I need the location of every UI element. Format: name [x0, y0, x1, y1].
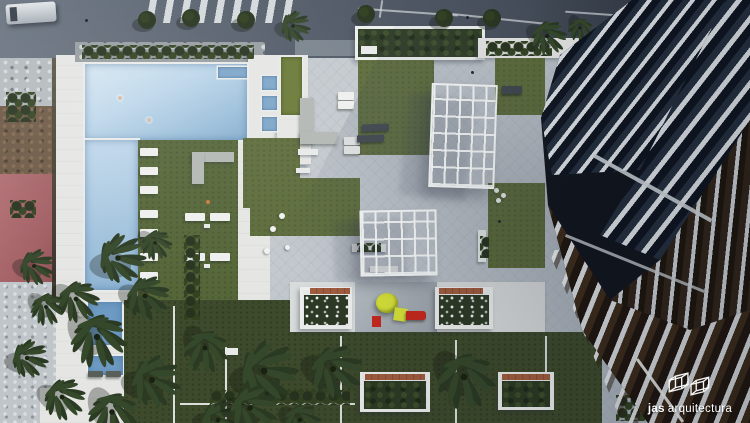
shrub-planter [498, 372, 554, 410]
hedge-row [210, 390, 350, 405]
person [471, 71, 474, 74]
pouf [501, 193, 506, 198]
shrub-planter [360, 372, 430, 412]
jacuzzi [262, 76, 277, 90]
swimmer [100, 318, 104, 322]
sun-lounger [140, 210, 158, 218]
brick-rim [310, 288, 350, 294]
jacuzzi [262, 117, 277, 131]
aerial-architectural-render: jasarquitectura [0, 0, 750, 423]
planter-shrubs [364, 381, 426, 409]
sun-lounger [185, 213, 205, 221]
bench-plants [480, 236, 489, 258]
plaza-lawn [250, 178, 360, 236]
bench [296, 168, 310, 173]
van-windshield [10, 7, 18, 21]
pouf [494, 188, 499, 193]
pouf [496, 198, 501, 203]
brick-rim [365, 374, 425, 380]
white-flowers [304, 295, 348, 325]
brick-rim [502, 374, 550, 380]
pouf [285, 245, 290, 250]
pouf [78, 312, 83, 317]
planter-shrubs [502, 381, 550, 407]
person [466, 16, 469, 19]
bush [10, 200, 36, 218]
pergola [428, 83, 498, 189]
sun-lounger [140, 272, 158, 280]
swimmer [118, 96, 122, 100]
curb-line [340, 336, 342, 423]
sun-lounger [338, 92, 354, 100]
person [206, 200, 210, 204]
sun-lounger [140, 148, 158, 156]
bushes [6, 92, 36, 122]
brick-rim [439, 288, 483, 294]
sun-lounger [106, 371, 121, 377]
pink-court [0, 174, 58, 282]
sun-lounger [338, 101, 354, 109]
playground-slide [406, 311, 426, 320]
sun-lounger [140, 186, 158, 194]
pool-step [218, 67, 247, 78]
crosswalk [146, 0, 296, 23]
logo-text-regular: arquitectura [668, 403, 732, 415]
hedge-row [486, 41, 552, 56]
pouf [264, 248, 270, 254]
white-flowers [439, 295, 489, 325]
curb-line [173, 306, 175, 423]
pouf [270, 226, 276, 232]
bench [502, 86, 522, 94]
flower-planter [300, 287, 352, 329]
pergola [359, 209, 437, 276]
curb-line [455, 340, 457, 423]
swimmer [147, 118, 151, 122]
flower-planter [435, 287, 493, 329]
swimming-pool-lane [85, 140, 138, 290]
person [85, 19, 88, 22]
planter-bench [361, 46, 377, 54]
sun-lounger [140, 229, 158, 237]
curb-line [225, 347, 227, 420]
stone-bench [192, 152, 204, 184]
sun-lounger [210, 213, 230, 221]
jacuzzi [262, 96, 277, 110]
logo-text: jasarquitectura [634, 403, 746, 415]
sun-lounger [140, 167, 158, 175]
bench [225, 348, 238, 355]
side-table [204, 264, 210, 268]
logo-text-bold: jas [648, 403, 665, 415]
person [498, 220, 501, 223]
hedge-row [82, 45, 254, 59]
studio-logo: jasarquitectura [634, 371, 746, 415]
spa-pool [88, 302, 122, 345]
bench [298, 149, 318, 155]
side-table [204, 224, 210, 228]
green-roof [281, 57, 302, 115]
hedge-column [184, 235, 200, 320]
sun-lounger [210, 253, 230, 261]
street-planter [355, 26, 485, 60]
sun-lounger [344, 146, 360, 154]
parked-van [5, 1, 56, 24]
stone-bench [300, 132, 338, 144]
playground-equipment [372, 316, 381, 327]
wireframe-cubes-icon [666, 371, 714, 398]
pool-deck [40, 388, 125, 423]
pouf [279, 213, 285, 219]
bench [362, 124, 389, 132]
sun-lounger [140, 253, 158, 261]
plaza-lawn [488, 183, 545, 268]
sun-lounger [88, 371, 103, 377]
bench [357, 135, 384, 143]
